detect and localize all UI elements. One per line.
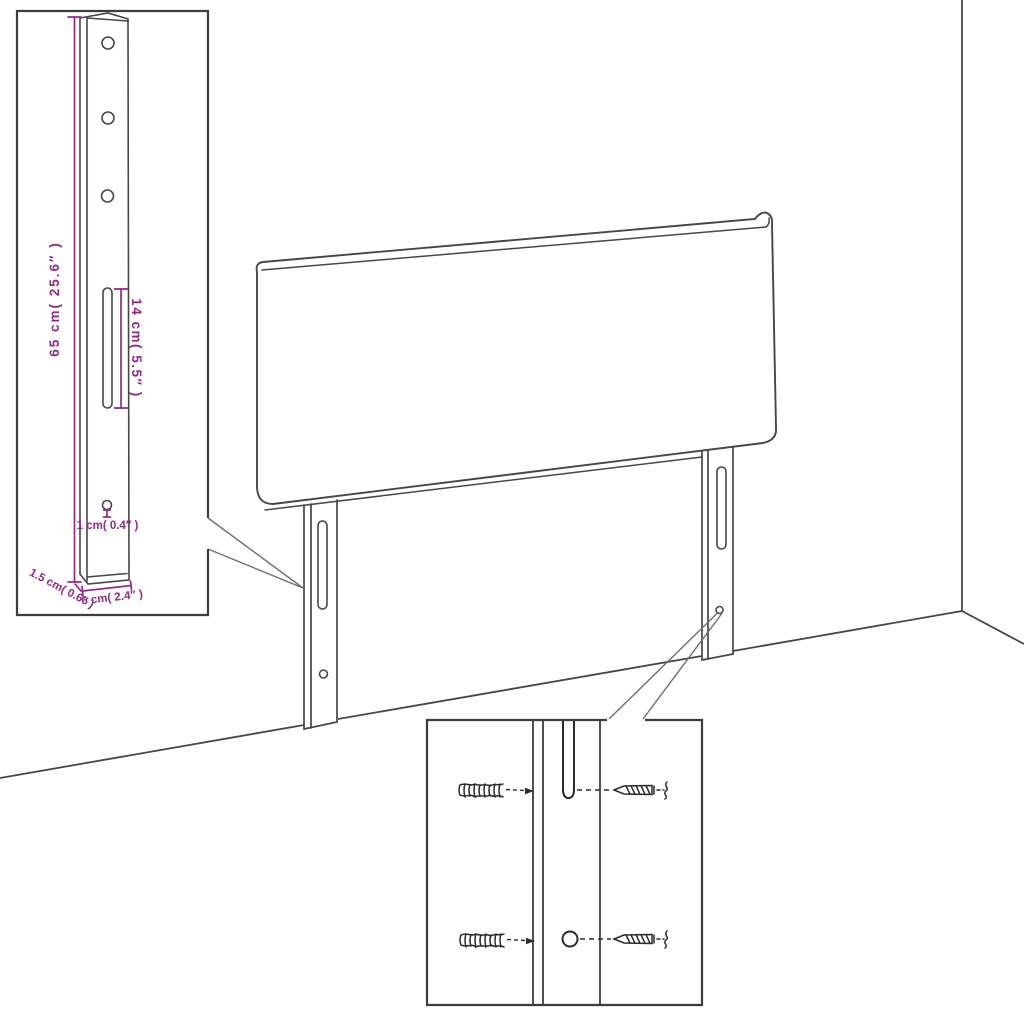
floor-line-right: [962, 611, 1024, 644]
diagram-canvas: 65 cm( 25.6″ ) 14 cm( 5.5″ ) 1 cm( 0.4″ …: [0, 0, 1024, 1024]
headboard-outline: [257, 213, 776, 504]
right-leg-slot: [717, 467, 726, 549]
left-leg-hole: [320, 670, 328, 678]
headboard-assembly-diagram: 65 cm( 25.6″ ) 14 cm( 5.5″ ) 1 cm( 0.4″ …: [0, 0, 1024, 1024]
floor-line-mid: [338, 656, 702, 719]
headboard-panel: [257, 213, 776, 510]
right-leg-hole: [716, 607, 723, 614]
mounting-leg-hole: [563, 932, 578, 947]
mounting-inset-border: [427, 720, 702, 1005]
leg-bracket-slot: [103, 288, 112, 408]
floor-line-near-wall: [733, 611, 962, 651]
floor-line-left: [0, 725, 304, 778]
right-leg: [702, 446, 733, 660]
leg-detail-leader-lines: [208, 518, 303, 588]
leg-detail-inset: 65 cm( 25.6″ ) 14 cm( 5.5″ ) 1 cm( 0.4″ …: [17, 11, 208, 615]
left-leg: [304, 500, 337, 729]
left-leg-slot: [318, 521, 327, 609]
mounting-detail-inset: [427, 720, 702, 1005]
dimension-label-height: 65 cm( 25.6″ ): [47, 241, 62, 357]
dimension-label-hole: 1 cm( 0.4″ ): [77, 520, 139, 532]
dimension-label-width: 6 cm( 2.4″ ): [81, 589, 144, 608]
dimension-label-slot: 14 cm( 5.5″ ): [129, 298, 144, 398]
